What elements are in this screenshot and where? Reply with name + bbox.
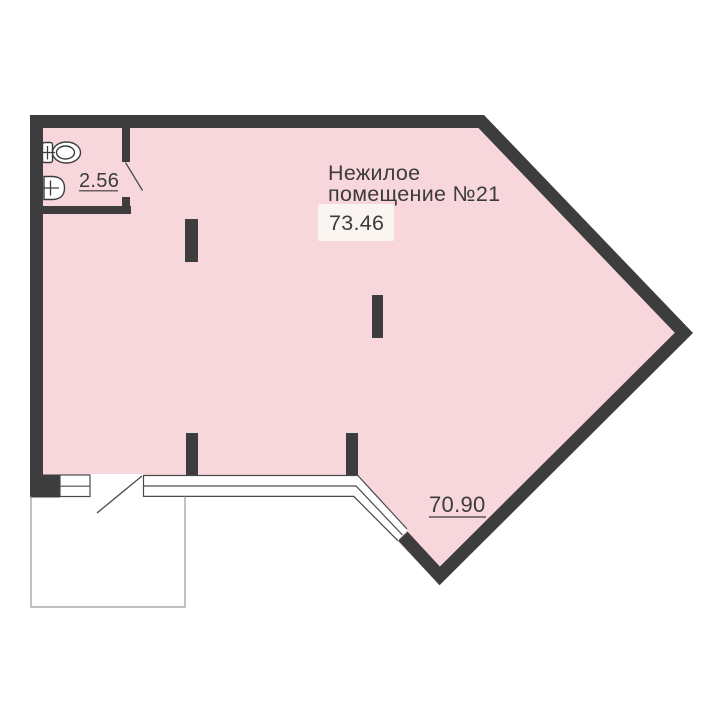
wall-corner-block [30, 475, 60, 498]
window-small [60, 475, 90, 497]
floor-plan-svg: Нежилое помещение №21 73.46 2.56 70.90 [0, 0, 726, 726]
wall-stub-lower-center [346, 433, 358, 475]
entrance-door-opening [90, 474, 143, 498]
sink-icon [42, 177, 65, 200]
window-band-outer-edge [143, 496, 398, 540]
terrace-outline [31, 497, 185, 608]
bathroom-area-label: 2.56 [79, 170, 119, 192]
wall-stub-center [372, 295, 383, 338]
toilet-bowl-inner [57, 146, 75, 159]
room-area-label: 73.46 [329, 211, 384, 235]
wall-stub-upper-left [185, 219, 198, 262]
bathroom-partition-upper [122, 128, 130, 162]
floor-plan-page: Нежилое помещение №21 73.46 2.56 70.90 [0, 0, 726, 726]
toilet-icon [41, 142, 81, 163]
total-area-label: 70.90 [429, 492, 486, 517]
room-name-line2: помещение №21 [328, 182, 500, 206]
bathroom-partition-bottom [42, 206, 131, 214]
wall-stub-lower-left [186, 433, 198, 475]
